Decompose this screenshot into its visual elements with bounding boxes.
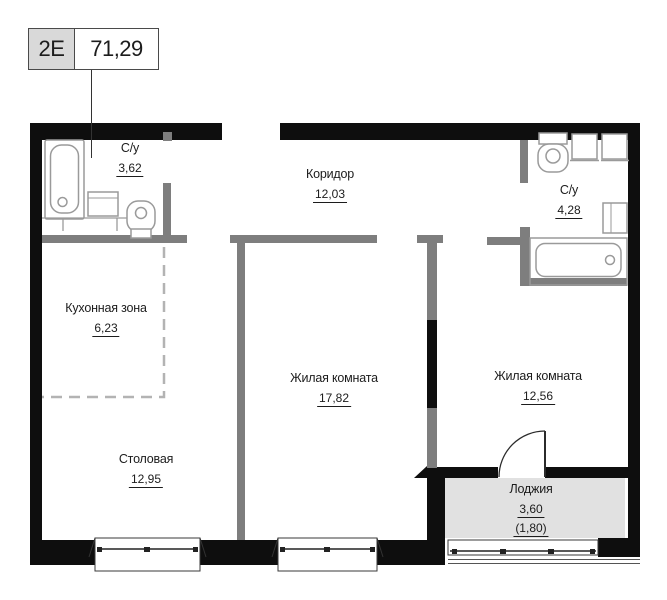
wall-corridor-south bbox=[487, 237, 520, 245]
room-area: 3,60 bbox=[517, 502, 544, 518]
room-name: С/у bbox=[555, 183, 582, 197]
door-swing-arc bbox=[499, 431, 545, 477]
wall-interroom-gray-upper bbox=[427, 243, 437, 320]
loggia-glazing bbox=[448, 540, 598, 555]
door-post bbox=[163, 132, 172, 141]
unit-type-code: 2E bbox=[29, 29, 75, 69]
window-tick bbox=[548, 549, 554, 554]
sink-icon bbox=[572, 134, 597, 159]
room-area-secondary: (1,80) bbox=[513, 521, 548, 537]
wall-wedge bbox=[414, 466, 427, 478]
wall-loggia-left bbox=[427, 467, 445, 565]
room-name: Жилая комната bbox=[494, 369, 582, 383]
unit-label-box: 2E 71,29 bbox=[28, 28, 159, 70]
wall-bath2-left-lower bbox=[520, 227, 530, 285]
unit-total-area: 71,29 bbox=[75, 29, 158, 69]
window-tick bbox=[280, 547, 285, 552]
wall-top-left bbox=[30, 123, 222, 140]
floor-plan: 2E 71,29 bbox=[0, 0, 667, 600]
room-name: Столовая bbox=[119, 452, 173, 466]
wall-interroom-cap bbox=[417, 235, 443, 243]
room-area: 6,23 bbox=[92, 321, 119, 337]
wall-dining-living1 bbox=[237, 243, 245, 540]
room-area: 3,62 bbox=[116, 161, 143, 177]
toilet-icon bbox=[127, 201, 155, 232]
wall-left bbox=[30, 123, 42, 565]
room-label-bathroom-1: С/у 3,62 bbox=[116, 141, 143, 177]
room-name: С/у bbox=[116, 141, 143, 155]
room-label-living-1: Жилая комната 17,82 bbox=[290, 371, 378, 407]
sink-icon bbox=[88, 192, 118, 216]
wall-right bbox=[628, 123, 640, 557]
room-area: 12,95 bbox=[129, 472, 163, 488]
washing-machine-icon bbox=[603, 203, 627, 233]
loggia-door bbox=[499, 431, 545, 477]
toilet-icon bbox=[538, 144, 568, 172]
bathtub-inner bbox=[536, 244, 621, 277]
windows bbox=[89, 538, 640, 571]
wall-bath1-right bbox=[163, 183, 171, 243]
room-label-kitchen: Кухонная зона 6,23 bbox=[65, 301, 146, 337]
window-tick bbox=[193, 547, 198, 552]
room-area: 12,56 bbox=[521, 389, 555, 405]
window-tick bbox=[97, 547, 102, 552]
wall-bottom-d bbox=[598, 538, 628, 557]
plan-graphics bbox=[0, 0, 667, 600]
room-label-living-2: Жилая комната 12,56 bbox=[494, 369, 582, 405]
room-label-bathroom-2: С/у 4,28 bbox=[555, 183, 582, 219]
wall-bath2-left-upper bbox=[520, 140, 528, 183]
window-tick bbox=[370, 547, 375, 552]
room-area: 17,82 bbox=[317, 391, 351, 407]
window-tick bbox=[144, 547, 150, 552]
toilet-base bbox=[131, 229, 151, 238]
wall-living1-top bbox=[230, 235, 377, 243]
window-tick bbox=[590, 549, 595, 554]
wall-interroom-gray-lower bbox=[427, 408, 437, 468]
window-tick bbox=[324, 547, 330, 552]
room-label-dining: Столовая 12,95 bbox=[119, 452, 173, 488]
window-2 bbox=[278, 538, 377, 571]
wall-bottom-a bbox=[30, 540, 95, 565]
room-area: 4,28 bbox=[555, 203, 582, 219]
wall-loggia-top-right bbox=[545, 467, 640, 478]
room-name: Коридор bbox=[306, 167, 354, 181]
window-tick bbox=[500, 549, 506, 554]
sink-icon bbox=[602, 134, 627, 159]
room-area: 12,03 bbox=[313, 187, 347, 203]
room-label-loggia: Лоджия 3,60 (1,80) bbox=[509, 482, 552, 537]
room-name: Кухонная зона bbox=[65, 301, 146, 315]
wall-interroom-black bbox=[427, 320, 437, 408]
toilet-tank bbox=[539, 133, 567, 144]
wall-bottom-b bbox=[200, 540, 278, 565]
leader-line bbox=[91, 70, 92, 158]
room-name: Жилая комната bbox=[290, 371, 378, 385]
window-1 bbox=[95, 538, 200, 571]
room-label-corridor: Коридор 12,03 bbox=[306, 167, 354, 203]
room-name: Лоджия bbox=[509, 482, 552, 496]
window-tick bbox=[452, 549, 457, 554]
